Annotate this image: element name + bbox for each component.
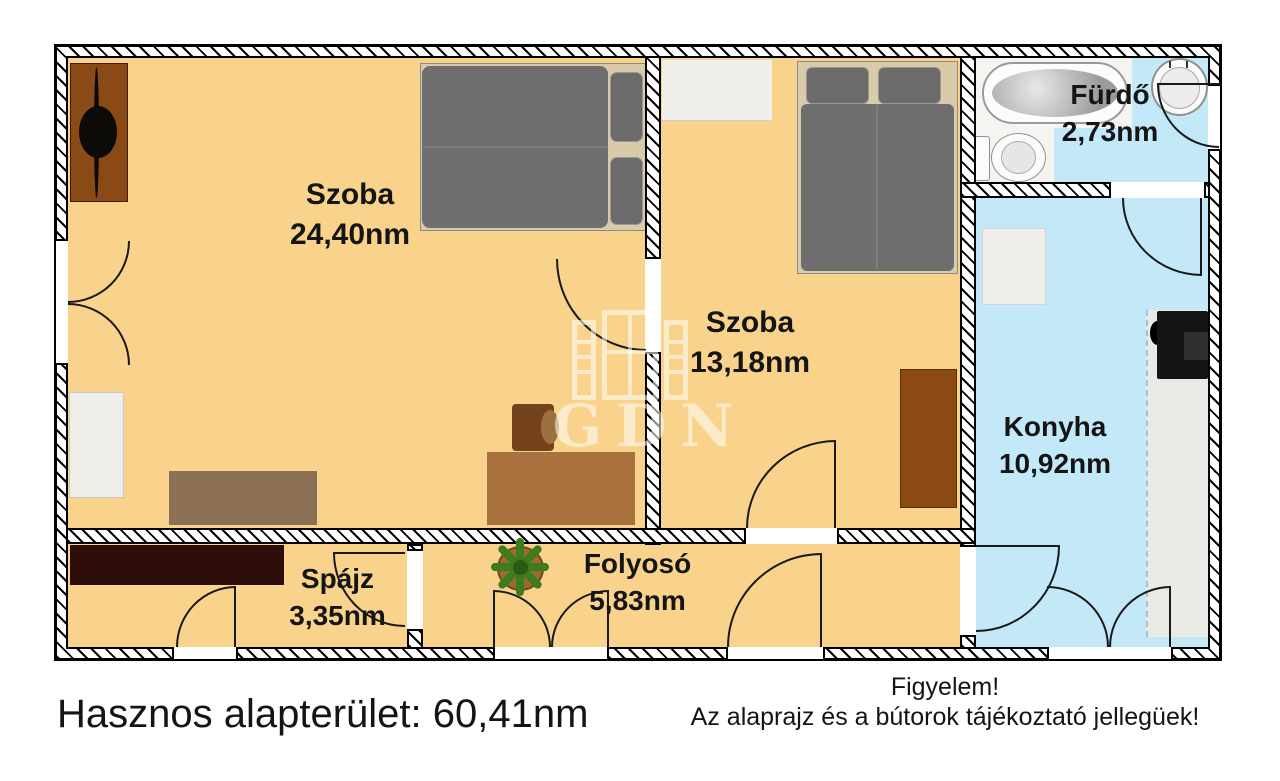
room-label-folyoso: Folyosó 5,83nm	[550, 545, 725, 619]
room-name: Folyosó	[550, 545, 725, 582]
floorplan-page: { "rooms": [ {"name": "Szoba", "area": "…	[0, 0, 1280, 781]
door-leaf-pantry	[234, 586, 236, 647]
room-area: 10,92nm	[965, 445, 1145, 482]
room-area: 5,83nm	[550, 582, 725, 619]
warning-note: Figyelem! Az alaprajz és a bútorok tájék…	[645, 672, 1245, 732]
watermark-logo-slat-2	[577, 355, 591, 359]
room-label-furdo: Fürdő 2,73nm	[1020, 76, 1200, 150]
watermark-logo-slat-3	[577, 370, 591, 374]
room-name: Szoba	[235, 175, 465, 215]
watermark-logo-slat-1	[577, 340, 591, 344]
cabinet-white-room2	[662, 60, 772, 121]
room-name: Szoba	[635, 303, 865, 343]
sofa-room1	[169, 471, 317, 525]
door-leaf-corridor-kitchen	[976, 545, 1060, 547]
room-area: 13,18nm	[635, 343, 865, 383]
warning-title: Figyelem!	[645, 672, 1245, 702]
warning-text: Az alaprajz és a bútorok tájékoztató jel…	[645, 702, 1245, 732]
door-gap-pantry	[172, 647, 238, 661]
room-label-konyha: Konyha 10,92nm	[965, 408, 1145, 482]
room-name: Spájz	[250, 560, 425, 597]
door-gap-kitchen-bottom	[1047, 647, 1173, 661]
total-area-text: Hasznos alapterület: 60,41nm	[57, 692, 588, 737]
door-leaf-entrance	[820, 553, 822, 647]
fridge	[982, 228, 1046, 305]
watermark-logo-icon	[572, 320, 596, 400]
room-label-spajz: Spájz 3,35nm	[250, 560, 425, 634]
pillow-room1-bottom	[610, 157, 643, 225]
door-leaf-kitchen-top	[1200, 198, 1202, 276]
door-gap-balcony	[54, 239, 68, 365]
sink-tap-left	[1169, 61, 1171, 68]
door-gap-room2	[744, 528, 839, 544]
pillow-room2-right	[878, 67, 941, 104]
pillow-room1-top	[610, 72, 643, 142]
double-bed-room1-seam	[423, 146, 607, 148]
double-bed-room2-seam	[876, 105, 878, 270]
desk-room1	[487, 452, 635, 525]
pillow-room2-left	[806, 67, 869, 104]
door-leaf-kitchen-bottom	[1169, 586, 1171, 647]
door-gap-corridor-double	[493, 647, 609, 661]
stove-burner	[1184, 332, 1208, 360]
door-gap-entrance	[726, 647, 825, 661]
room-area: 3,35nm	[250, 597, 425, 634]
room-label-szoba-2: Szoba 13,18nm	[635, 303, 865, 383]
door-leaf-room2	[834, 440, 836, 528]
toilet-tank	[974, 136, 990, 181]
sink-tap-right	[1186, 61, 1188, 68]
cabinet-decor-oval	[79, 106, 117, 158]
watermark-logo-mullion-v	[628, 315, 632, 395]
wardrobe-room2	[900, 369, 957, 508]
plant-center	[513, 560, 528, 575]
room-area: 2,73nm	[1020, 113, 1200, 150]
watermark-text: GDN	[545, 392, 755, 460]
door-leaf-corridor-left	[493, 590, 495, 647]
cabinet-white-room1	[69, 392, 124, 498]
door-gap-corridor-kitchen	[960, 545, 976, 637]
room-area: 24,40nm	[235, 215, 465, 255]
room-label-szoba-1: Szoba 24,40nm	[235, 175, 465, 255]
door-leaf-pantry-corridor	[333, 552, 405, 554]
room-name: Fürdő	[1020, 76, 1200, 113]
room-name: Konyha	[965, 408, 1145, 445]
door-gap-bath-kitchen	[1109, 182, 1206, 198]
